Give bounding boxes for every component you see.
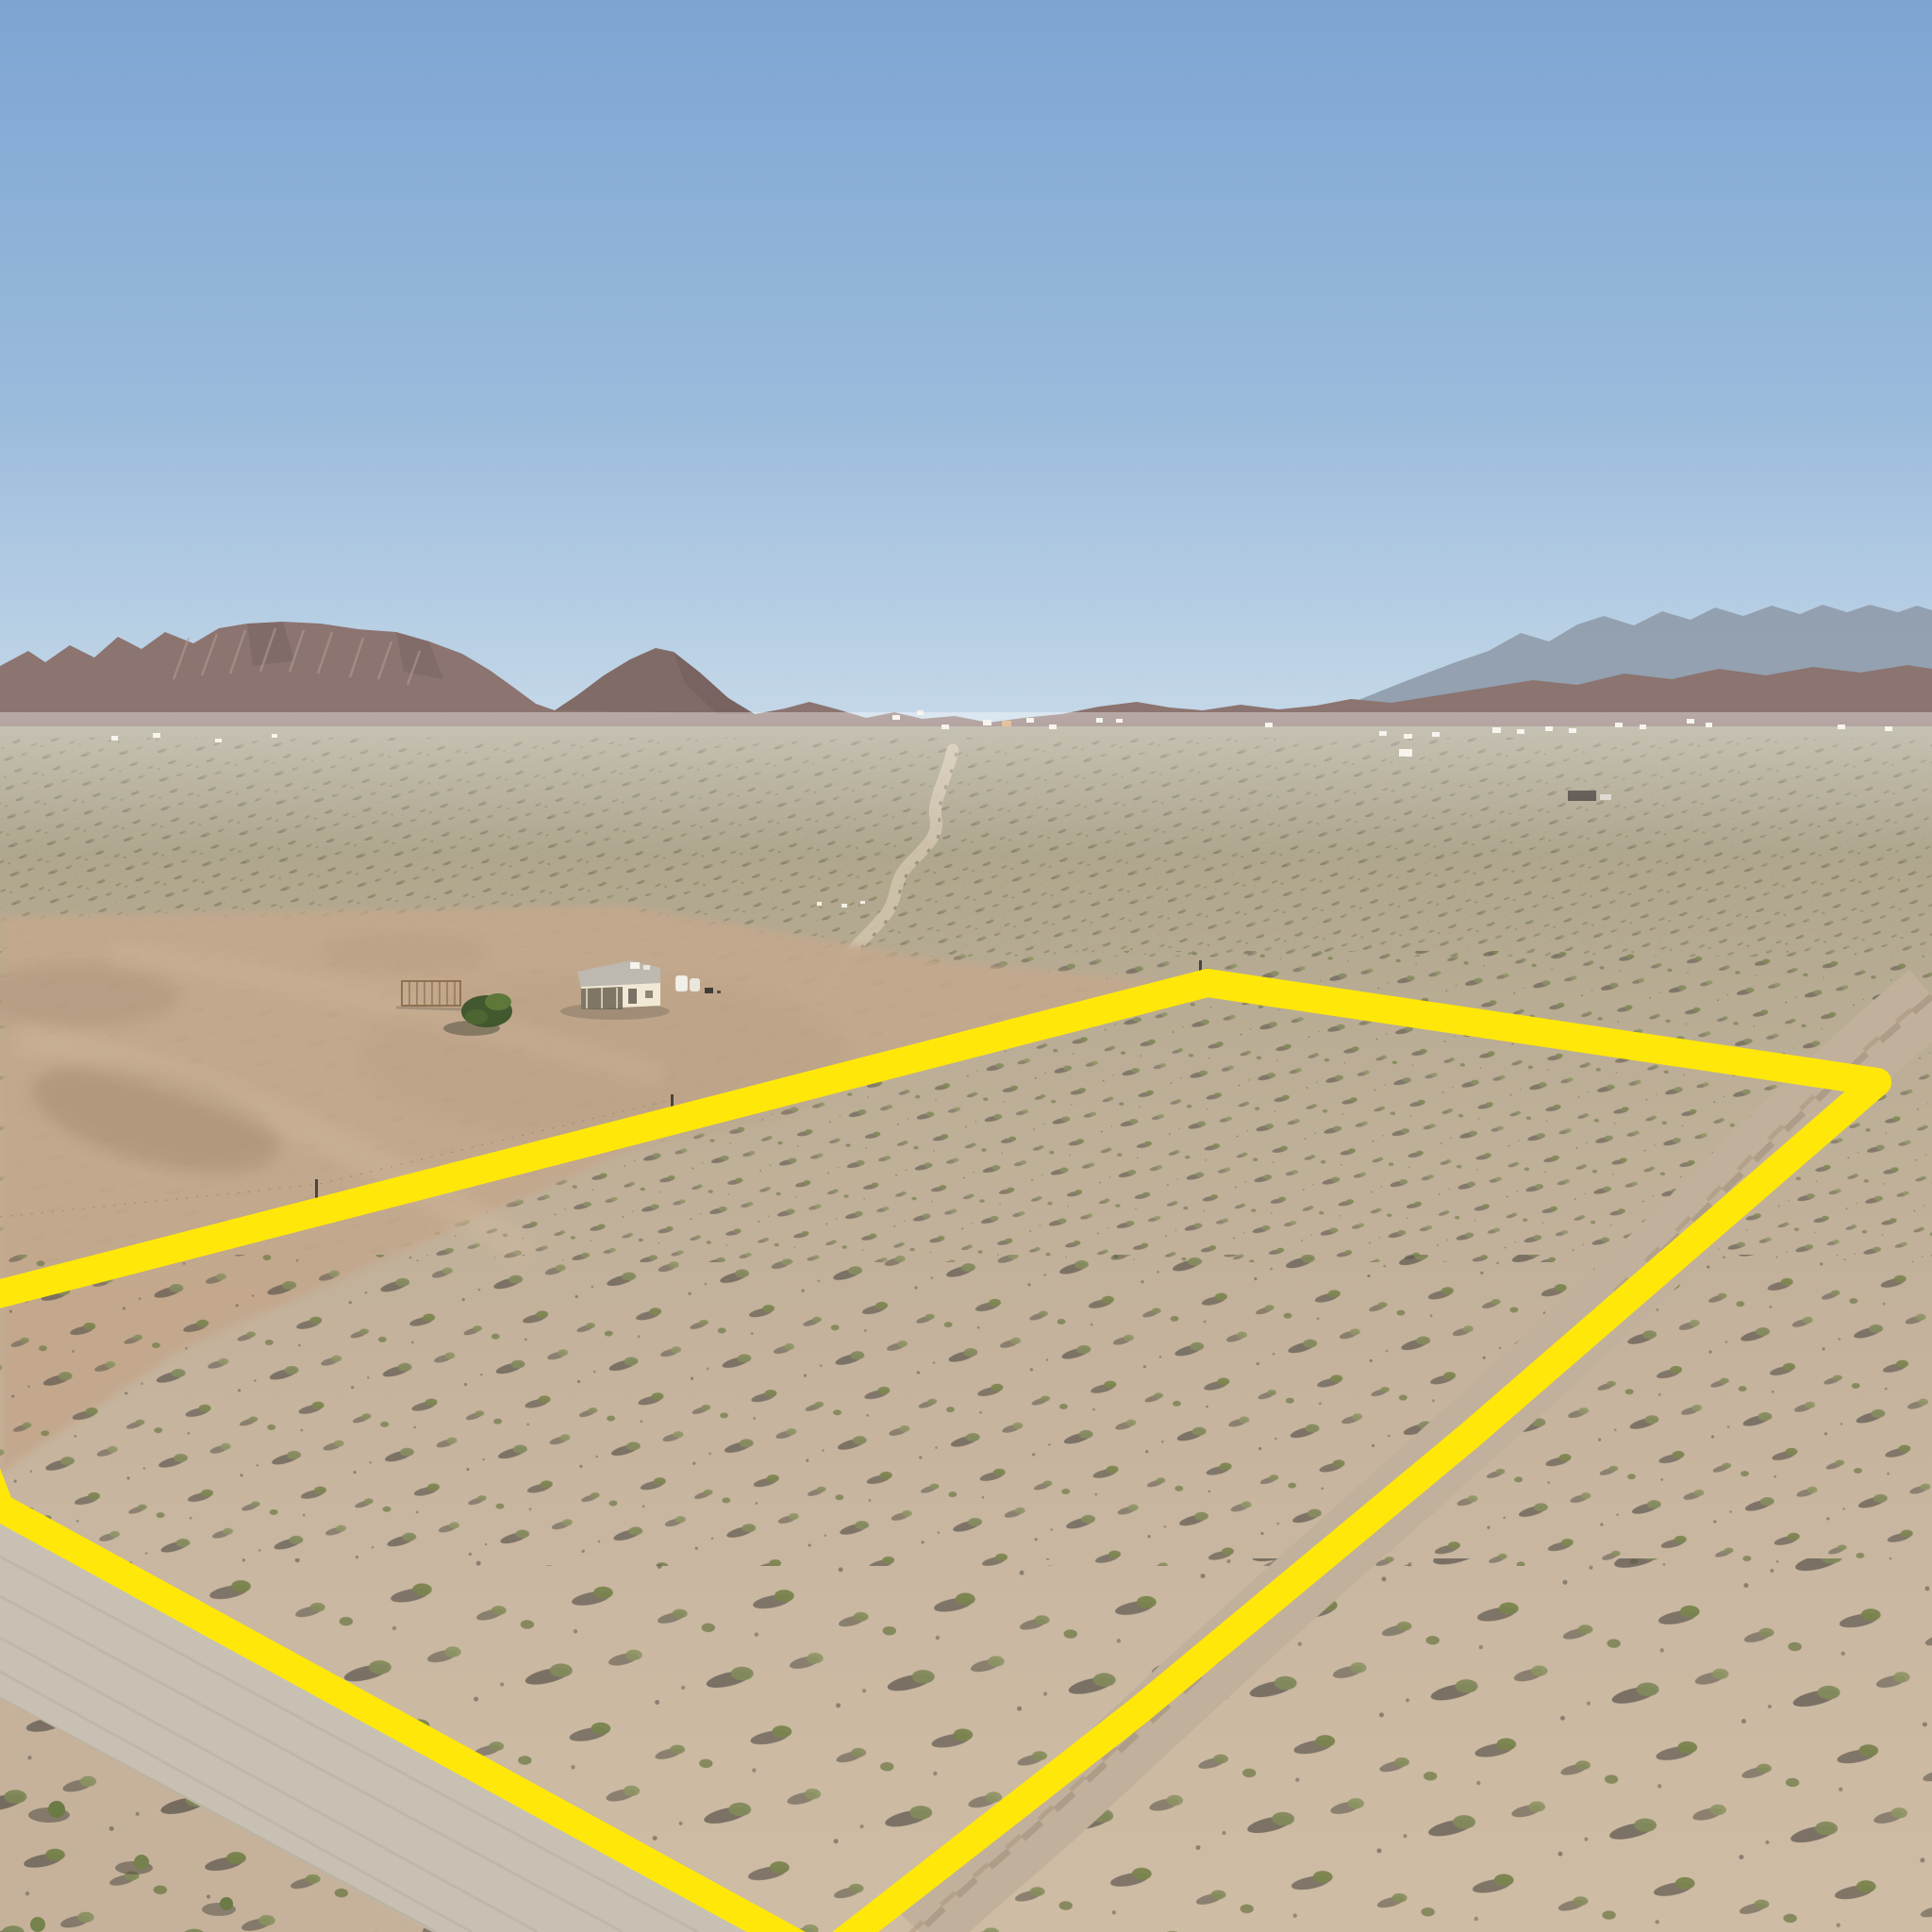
roof-ac-unit (630, 962, 640, 969)
photo-frame (0, 0, 1932, 1932)
house-window (645, 991, 653, 998)
roof-vent (643, 965, 650, 970)
horizon-haze (0, 712, 1932, 854)
house-door (628, 989, 637, 1004)
aerial-photo (0, 0, 1932, 1932)
dark-vehicle (705, 988, 713, 993)
